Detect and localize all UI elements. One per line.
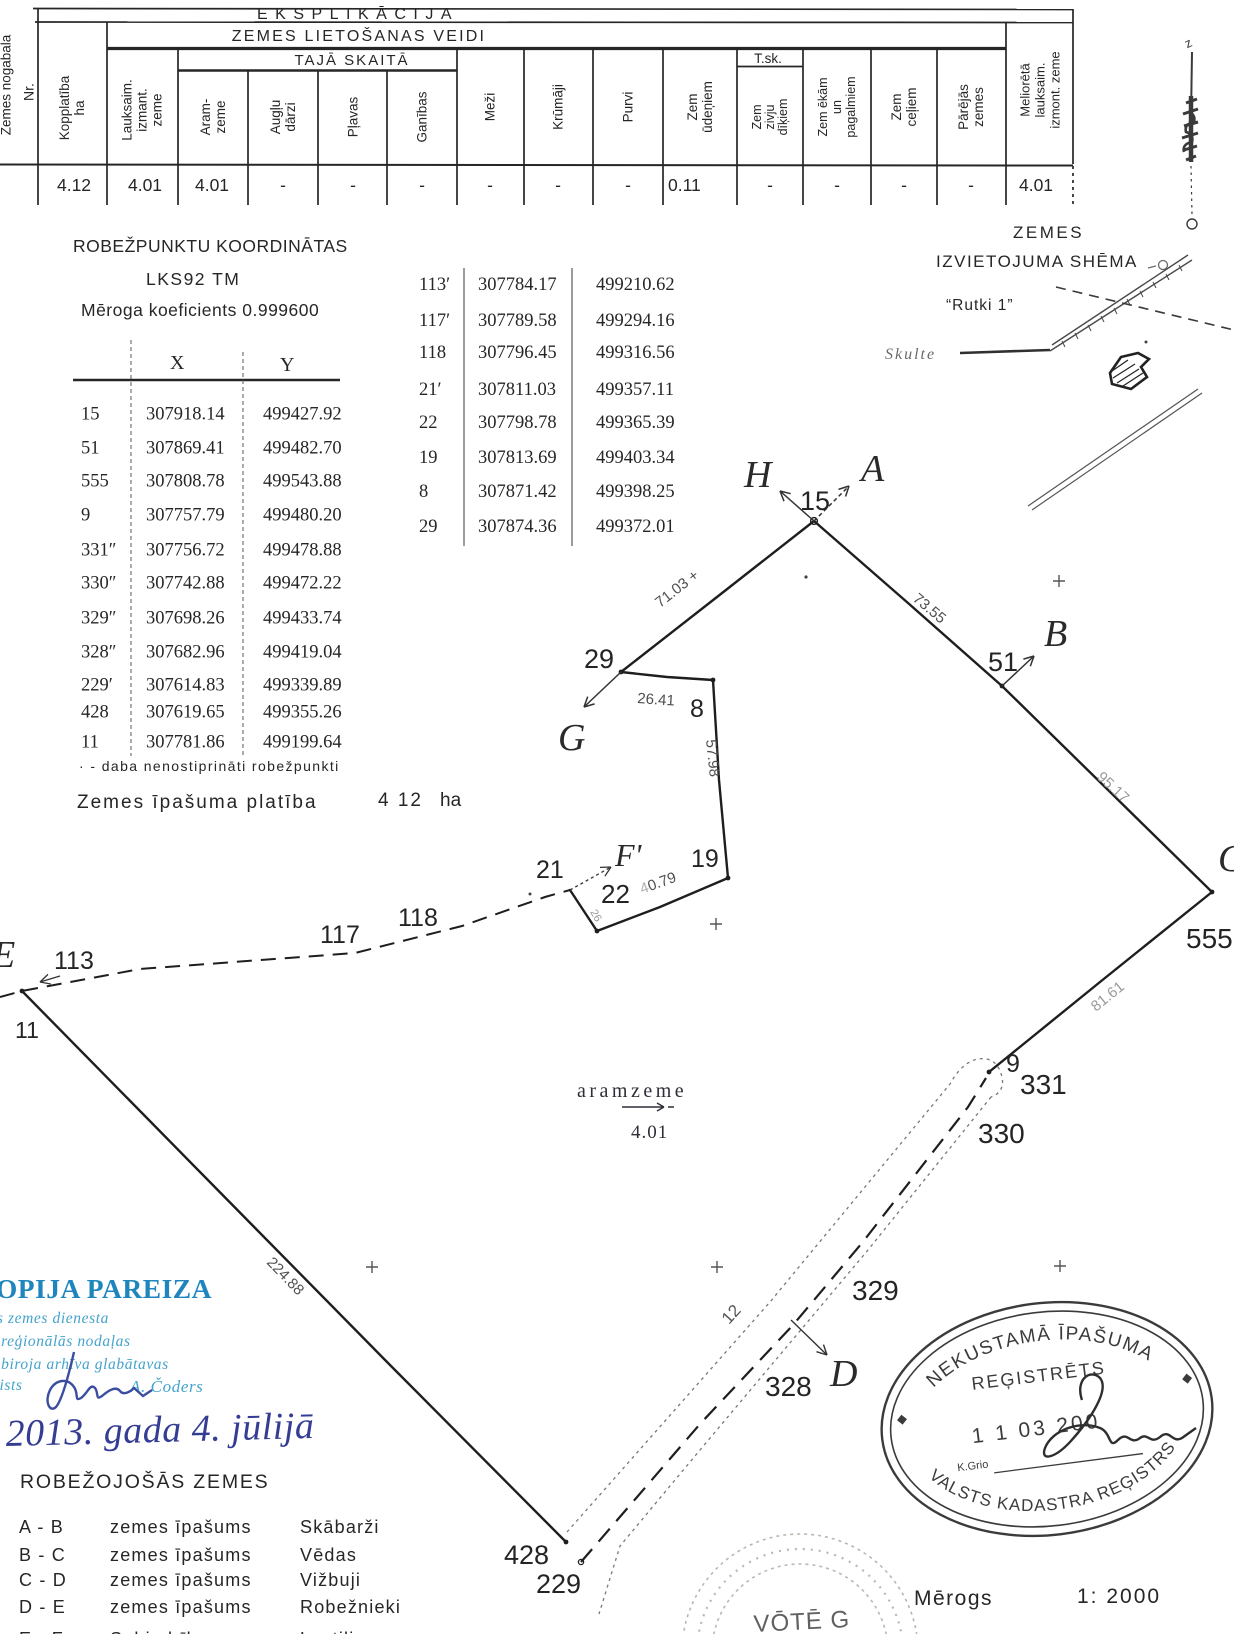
- svg-text:307619.65: 307619.65: [146, 703, 225, 723]
- svg-text:ūdeņiem: ūdeņiem: [700, 81, 715, 133]
- svg-text:-: -: [419, 175, 425, 195]
- svg-text:Skābarži: Skābarži: [300, 1517, 380, 1537]
- svg-text:Krūmāji: Krūmāji: [551, 84, 566, 130]
- svg-text:499403.34: 499403.34: [596, 448, 675, 468]
- svg-text:· - daba nenostiprināti robežp: · - daba nenostiprināti robežpunkti: [79, 758, 340, 774]
- svg-text:307869.41: 307869.41: [146, 439, 225, 459]
- svg-text:499398.25: 499398.25: [596, 482, 675, 502]
- svg-text:118: 118: [398, 904, 438, 932]
- svg-text:57.98: 57.98: [702, 739, 723, 778]
- svg-text:2013. gada 4. jūlijā: 2013. gada 4. jūlijā: [5, 1405, 315, 1455]
- svg-text:307789.58: 307789.58: [478, 311, 557, 331]
- svg-text:-: -: [767, 175, 773, 195]
- svg-text:Meži: Meži: [483, 93, 498, 122]
- svg-text:307796.45: 307796.45: [478, 343, 557, 363]
- svg-text:499478.88: 499478.88: [263, 541, 342, 561]
- svg-text:Meliorētā: Meliorētā: [1017, 62, 1032, 116]
- svg-text:ha: ha: [440, 790, 462, 811]
- svg-text:Pārējās: Pārējās: [956, 84, 971, 130]
- svg-text:19: 19: [691, 845, 719, 873]
- svg-text:26.41: 26.41: [637, 690, 676, 710]
- svg-text:B - C: B - C: [19, 1545, 66, 1565]
- svg-text:dārzi: dārzi: [283, 102, 298, 131]
- svg-text:ROBEŽOJOŠĀS ZEMES: ROBEŽOJOŠĀS ZEMES: [20, 1470, 269, 1493]
- svg-text:118: 118: [419, 343, 446, 363]
- svg-text:555: 555: [1186, 923, 1233, 954]
- svg-text:117′: 117′: [419, 311, 450, 331]
- svg-text:un: un: [830, 100, 844, 114]
- svg-text:40.79: 40.79: [638, 869, 679, 898]
- svg-text:ZEMES LIETOŠANAS VEIDI: ZEMES LIETOŠANAS VEIDI: [232, 26, 486, 45]
- svg-text:zivju: zivju: [763, 104, 777, 129]
- svg-text:Zem: Zem: [685, 94, 700, 121]
- svg-text:Vižbuji: Vižbuji: [300, 1570, 361, 1590]
- svg-text:12: 12: [718, 1301, 745, 1328]
- svg-text:307781.86: 307781.86: [146, 733, 225, 753]
- svg-text:pagalmiem: pagalmiem: [844, 76, 858, 137]
- svg-text:117: 117: [320, 921, 360, 949]
- svg-text:TAJĀ SKAITĀ: TAJĀ SKAITĀ: [294, 52, 409, 69]
- svg-text:307757.79: 307757.79: [146, 506, 225, 526]
- svg-text:229′: 229′: [81, 676, 113, 696]
- svg-text:zemes īpašums: zemes īpašums: [110, 1597, 252, 1617]
- svg-text:Pļavas: Pļavas: [346, 96, 361, 137]
- svg-text:Zemes īpašuma platība: Zemes īpašuma platība: [77, 792, 318, 813]
- svg-text:307784.17: 307784.17: [478, 275, 557, 295]
- svg-text:s reģionālās nodaļas: s reģionālās nodaļas: [0, 1333, 131, 1350]
- svg-text:229: 229: [536, 1569, 581, 1599]
- svg-text:-: -: [487, 175, 493, 195]
- svg-text:307682.96: 307682.96: [146, 643, 225, 663]
- svg-text:499472.22: 499472.22: [263, 574, 342, 594]
- svg-text:-: -: [350, 175, 356, 195]
- svg-text:4 12: 4 12: [378, 790, 423, 811]
- svg-text:izmant.: izmant.: [135, 88, 150, 132]
- svg-text:H: H: [743, 454, 774, 496]
- svg-text:307798.78: 307798.78: [478, 413, 557, 433]
- svg-text:4.01: 4.01: [195, 175, 229, 195]
- svg-text:15: 15: [800, 486, 830, 516]
- svg-text:LKS92 TM: LKS92 TM: [146, 269, 240, 289]
- svg-text:0.11: 0.11: [668, 175, 701, 195]
- svg-text:Nr.: Nr.: [21, 83, 37, 101]
- svg-text:E - F: E - F: [19, 1629, 64, 1634]
- svg-text:zemes: zemes: [971, 87, 986, 127]
- svg-text:B: B: [1044, 613, 1067, 655]
- svg-text:8: 8: [419, 482, 428, 502]
- svg-text:307918.14: 307918.14: [146, 405, 225, 425]
- svg-text:307811.03: 307811.03: [478, 380, 556, 400]
- svg-text:499482.70: 499482.70: [263, 439, 342, 459]
- svg-text:zeme: zeme: [150, 93, 165, 126]
- svg-text:499433.74: 499433.74: [263, 609, 342, 629]
- svg-text:ceļiem: ceļiem: [904, 87, 919, 126]
- svg-text:C: C: [1218, 838, 1234, 880]
- svg-text:D: D: [829, 1353, 857, 1395]
- svg-text:-: -: [625, 175, 631, 195]
- svg-text:499427.92: 499427.92: [263, 405, 342, 425]
- svg-text:A: A: [858, 448, 885, 490]
- svg-text:4.12: 4.12: [57, 175, 91, 195]
- svg-text:113′: 113′: [419, 275, 450, 295]
- svg-text:z: z: [1182, 35, 1194, 51]
- svg-text:Lestili: Lestili: [300, 1629, 354, 1634]
- svg-text:ts zemes dienesta: ts zemes dienesta: [0, 1310, 109, 1327]
- svg-text:331: 331: [1020, 1069, 1067, 1100]
- svg-text:9: 9: [1006, 1050, 1020, 1078]
- svg-text:499357.11: 499357.11: [596, 380, 674, 400]
- svg-text:21: 21: [536, 856, 564, 884]
- svg-text:dīķiem: dīķiem: [776, 99, 790, 136]
- svg-text:328″: 328″: [81, 643, 116, 663]
- svg-text:555: 555: [81, 472, 109, 492]
- svg-text:11: 11: [15, 1017, 39, 1043]
- svg-text:19: 19: [419, 448, 438, 468]
- svg-text:499199.64: 499199.64: [263, 733, 342, 753]
- svg-text:Y: Y: [280, 354, 294, 376]
- svg-text:29: 29: [584, 644, 614, 674]
- svg-text:Lauksaim.: Lauksaim.: [120, 79, 135, 141]
- svg-text:428: 428: [504, 1540, 549, 1570]
- svg-text:Sabiedrība: Sabiedrība: [110, 1629, 209, 1634]
- svg-text:A - B: A - B: [19, 1517, 64, 1537]
- svg-text:Robežnieki: Robežnieki: [300, 1597, 401, 1617]
- svg-text:-: -: [555, 175, 561, 195]
- svg-text:499365.39: 499365.39: [596, 413, 675, 433]
- svg-text:331″: 331″: [81, 541, 116, 561]
- svg-text:-: -: [901, 175, 907, 195]
- svg-text:Skulte: Skulte: [885, 346, 936, 363]
- svg-text:ha: ha: [72, 100, 87, 116]
- svg-text:X: X: [170, 352, 185, 374]
- svg-text:zemes īpašums: zemes īpašums: [110, 1517, 252, 1537]
- svg-text:EKSPLIKĀCIJA: EKSPLIKĀCIJA: [257, 5, 459, 23]
- svg-text:ROBEŽPUNKTU KOORDINĀTAS: ROBEŽPUNKTU KOORDINĀTAS: [73, 236, 348, 256]
- svg-text:F': F': [614, 837, 643, 873]
- svg-text:499480.20: 499480.20: [263, 506, 342, 526]
- svg-text:9: 9: [81, 506, 90, 526]
- svg-text:428: 428: [81, 703, 109, 723]
- svg-text:499210.62: 499210.62: [596, 275, 675, 295]
- svg-text:Aram-: Aram-: [198, 99, 213, 136]
- svg-text:51: 51: [81, 439, 100, 459]
- svg-text:s biroja arhīva glabātavas: s biroja arhīva glabātavas: [0, 1356, 169, 1373]
- svg-text:Zem: Zem: [889, 94, 904, 121]
- svg-text:71.03 +: 71.03 +: [652, 567, 702, 612]
- svg-text:C - D: C - D: [19, 1570, 67, 1590]
- svg-text:499294.16: 499294.16: [596, 311, 675, 331]
- svg-text:4.01: 4.01: [1019, 175, 1053, 195]
- svg-text:ZEMES: ZEMES: [1013, 223, 1084, 242]
- svg-text:8: 8: [690, 695, 704, 723]
- svg-text:22: 22: [419, 413, 438, 433]
- svg-text:Mērogs: Mērogs: [914, 1587, 993, 1610]
- svg-text:499355.26: 499355.26: [263, 703, 342, 723]
- svg-text:E: E: [0, 934, 15, 976]
- svg-text:51: 51: [988, 647, 1018, 677]
- svg-text:IZVIETOJUMA SHĒMA: IZVIETOJUMA SHĒMA: [936, 252, 1138, 271]
- svg-text:307808.78: 307808.78: [146, 472, 225, 492]
- svg-text:T.sk.: T.sk.: [754, 51, 782, 66]
- svg-text:-: -: [280, 175, 286, 195]
- svg-text:-: -: [834, 175, 840, 195]
- svg-text:499543.88: 499543.88: [263, 472, 342, 492]
- svg-text:307698.26: 307698.26: [146, 609, 225, 629]
- svg-text:Ganības: Ganības: [415, 91, 430, 142]
- svg-text:113: 113: [54, 947, 94, 975]
- svg-text:11: 11: [81, 733, 99, 753]
- svg-text:K.Grio: K.Grio: [957, 1459, 989, 1475]
- svg-text:Augļu: Augļu: [268, 100, 283, 135]
- svg-text:lauksaim.: lauksaim.: [1032, 63, 1047, 118]
- svg-text:307614.83: 307614.83: [146, 676, 225, 696]
- svg-text:329: 329: [852, 1275, 899, 1306]
- svg-text:307813.69: 307813.69: [478, 448, 557, 468]
- svg-text:Zem ēkām: Zem ēkām: [816, 77, 830, 136]
- svg-text:Kopplatība: Kopplatība: [57, 75, 72, 140]
- svg-text:329″: 329″: [81, 609, 116, 629]
- svg-text:1: 2000: 1: 2000: [1077, 1585, 1161, 1608]
- svg-text:zemes īpašums: zemes īpašums: [110, 1570, 252, 1590]
- svg-text:zeme: zeme: [213, 100, 228, 133]
- svg-text:-: -: [968, 175, 974, 195]
- svg-text:95.17: 95.17: [1093, 768, 1132, 806]
- svg-text:zemes īpašums: zemes īpašums: [110, 1545, 252, 1565]
- svg-text:307742.88: 307742.88: [146, 574, 225, 594]
- svg-text:81.61: 81.61: [1088, 978, 1128, 1015]
- svg-text:15: 15: [81, 405, 100, 425]
- svg-text:“Rutki 1”: “Rutki 1”: [946, 297, 1014, 314]
- svg-text:224.88: 224.88: [263, 1254, 307, 1299]
- svg-text:vists: vists: [0, 1377, 23, 1394]
- svg-text:Purvi: Purvi: [621, 92, 636, 123]
- svg-text:307756.72: 307756.72: [146, 541, 225, 561]
- svg-text:G: G: [558, 717, 585, 759]
- svg-text:330: 330: [978, 1118, 1025, 1149]
- svg-text:KOPIJA PAREIZA: KOPIJA PAREIZA: [0, 1273, 212, 1304]
- svg-text:Mēroga koeficients 0.999600: Mēroga koeficients 0.999600: [81, 300, 319, 320]
- svg-text:330″: 330″: [81, 574, 116, 594]
- svg-text:Zemes nogabala: Zemes nogabala: [0, 34, 14, 135]
- svg-text:4.01: 4.01: [631, 1122, 668, 1143]
- svg-text:D - E: D - E: [19, 1597, 66, 1617]
- svg-text:Zem: Zem: [750, 105, 764, 130]
- svg-text:izmont. zeme: izmont. zeme: [1047, 51, 1062, 128]
- svg-text:499316.56: 499316.56: [596, 343, 675, 363]
- svg-text:VŌTĒ G: VŌTĒ G: [753, 1606, 851, 1634]
- svg-text:29: 29: [419, 517, 438, 537]
- svg-text:21′: 21′: [419, 380, 442, 400]
- svg-text:499419.04: 499419.04: [263, 643, 342, 663]
- svg-text:499372.01: 499372.01: [596, 517, 675, 537]
- svg-text:aramzeme: aramzeme: [577, 1080, 687, 1102]
- svg-text:328: 328: [765, 1371, 812, 1402]
- svg-text:307871.42: 307871.42: [478, 482, 557, 502]
- svg-text:22: 22: [601, 879, 630, 909]
- svg-text:307874.36: 307874.36: [478, 517, 557, 537]
- svg-text:499339.89: 499339.89: [263, 676, 342, 696]
- svg-text:Vēdas: Vēdas: [300, 1545, 357, 1565]
- svg-text:4.01: 4.01: [128, 175, 162, 195]
